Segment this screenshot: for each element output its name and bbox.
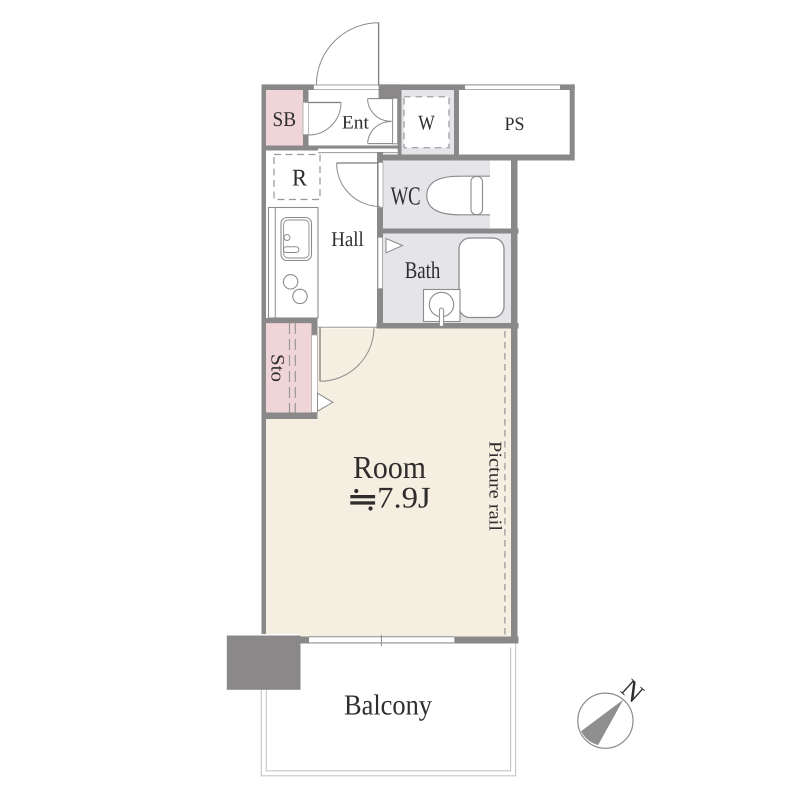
svg-text:Bath: Bath — [405, 258, 441, 284]
svg-text:PS: PS — [505, 114, 525, 135]
svg-text:Ent: Ent — [342, 112, 370, 133]
svg-text:W: W — [418, 111, 435, 135]
svg-text:Room: Room — [353, 449, 426, 485]
svg-text:Sto: Sto — [267, 354, 288, 382]
svg-text:WC: WC — [391, 181, 421, 210]
svg-text:Balcony: Balcony — [344, 690, 432, 722]
svg-text:Hall: Hall — [331, 227, 364, 251]
svg-text:7.9J: 7.9J — [377, 481, 431, 514]
svg-text:Picture rail: Picture rail — [486, 441, 506, 531]
svg-text:SB: SB — [273, 107, 297, 131]
svg-text:R: R — [292, 166, 307, 192]
